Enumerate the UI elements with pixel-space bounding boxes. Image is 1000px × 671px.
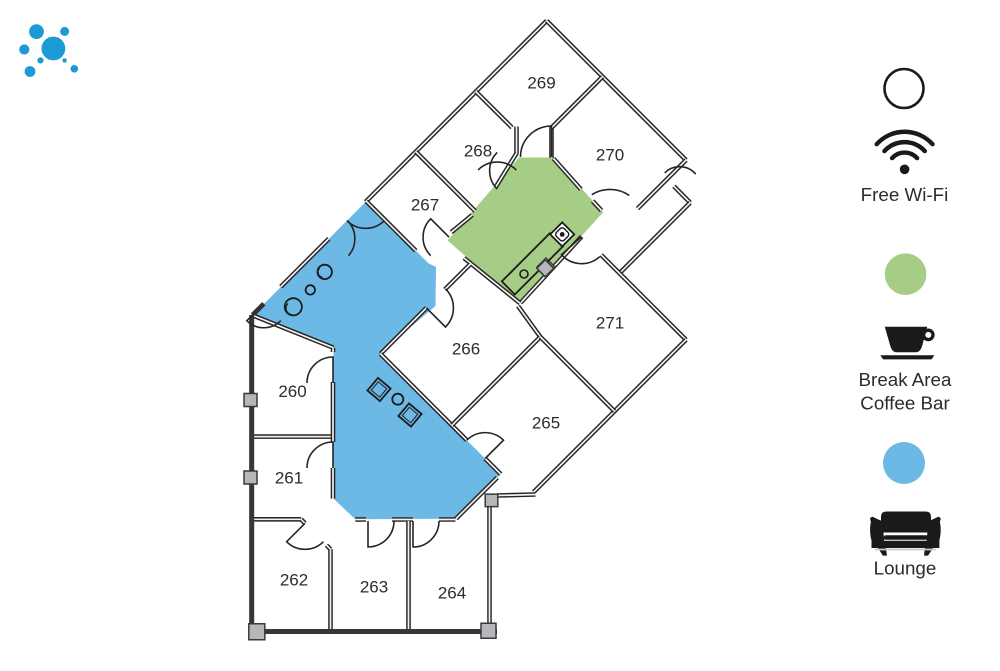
svg-text:265: 265 bbox=[532, 414, 560, 433]
svg-text:268: 268 bbox=[464, 142, 492, 161]
svg-text:262: 262 bbox=[280, 571, 308, 590]
svg-text:271: 271 bbox=[596, 314, 624, 333]
svg-text:269: 269 bbox=[527, 74, 555, 93]
svg-text:Coffee Bar: Coffee Bar bbox=[860, 393, 949, 414]
svg-text:267: 267 bbox=[411, 196, 439, 215]
svg-text:Break Area: Break Area bbox=[859, 369, 952, 390]
svg-text:263: 263 bbox=[360, 578, 388, 597]
svg-text:Free Wi-Fi: Free Wi-Fi bbox=[861, 184, 949, 205]
svg-text:266: 266 bbox=[452, 340, 480, 359]
svg-text:270: 270 bbox=[596, 146, 624, 165]
svg-text:261: 261 bbox=[275, 469, 303, 488]
svg-text:264: 264 bbox=[438, 584, 466, 603]
svg-text:Lounge: Lounge bbox=[874, 558, 937, 579]
svg-text:260: 260 bbox=[278, 382, 306, 401]
